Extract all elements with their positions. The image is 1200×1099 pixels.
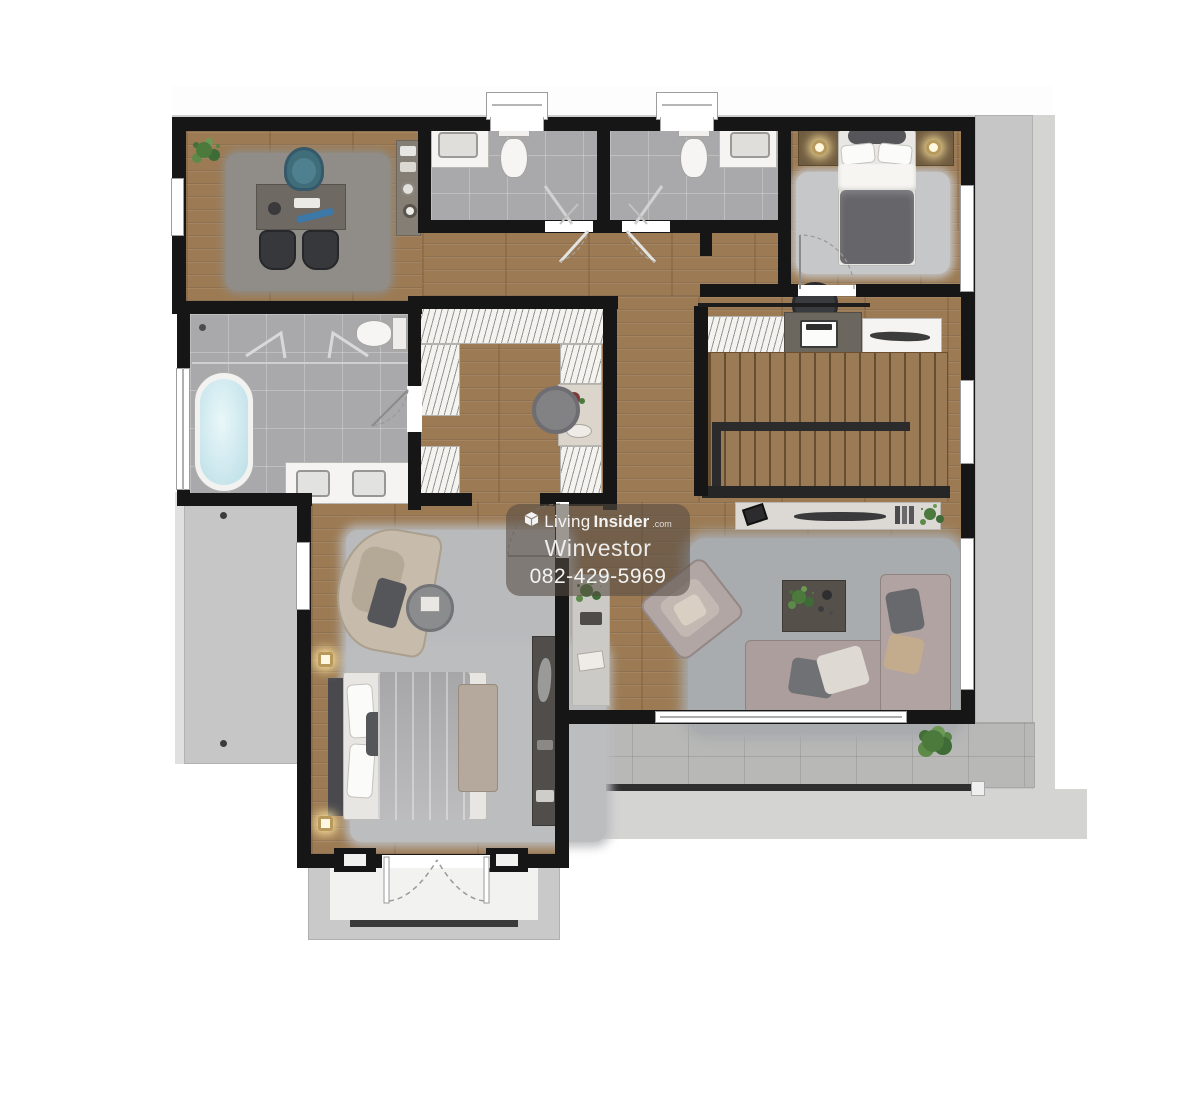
wall-segment: [597, 117, 610, 227]
books: [902, 506, 907, 524]
entry-balcony-railing: [350, 920, 518, 927]
table-lamp: [812, 140, 827, 155]
bathroom1-window-box: [486, 92, 548, 120]
office-shelf-items: [401, 182, 415, 196]
door-gap: [622, 221, 670, 232]
bathroom2-window-box: [656, 92, 718, 120]
stair-wall: [702, 486, 950, 498]
plant: [922, 730, 944, 752]
wall-segment: [778, 117, 791, 292]
entry-pilaster-core: [344, 854, 366, 866]
bathroom2-sink: [730, 132, 770, 158]
wall-segment: [408, 493, 472, 506]
table-tray: [420, 596, 440, 612]
window-mullion: [182, 368, 184, 490]
wall-segment: [418, 117, 431, 227]
watermark-brand-row: LivingInsider.com: [524, 511, 671, 530]
wall-segment: [412, 296, 618, 309]
bed-bench: [458, 684, 498, 792]
desk-wall-line: [698, 303, 870, 307]
bathtub-water: [200, 379, 248, 485]
wall-segment: [172, 301, 422, 314]
watermark-agent-name: Winvestor: [545, 535, 652, 562]
office-shelf-items: [400, 146, 416, 156]
door-gap: [407, 386, 422, 432]
shower-head: [199, 324, 206, 331]
sofa-pillow: [883, 633, 926, 676]
guest-chair: [302, 230, 339, 270]
office-keyboard: [294, 198, 320, 208]
guest-chair: [259, 230, 296, 270]
bed-pillow: [877, 142, 913, 165]
wall-segment: [418, 220, 791, 233]
livinginsider-logo-cube-icon: [524, 511, 539, 527]
watermark-brand-bold: Insider: [593, 513, 649, 530]
window: [960, 380, 974, 464]
bathroom1-sink: [438, 132, 478, 158]
wall-window-gap: [660, 117, 714, 131]
sliding-door-track: [660, 716, 902, 718]
terrace-railing: [585, 784, 977, 791]
downlight: [220, 740, 227, 747]
closet-ottoman: [532, 386, 580, 434]
table-lamp: [926, 140, 941, 155]
window: [960, 185, 974, 292]
wall-lamp: [318, 652, 333, 667]
sofa-pillow: [885, 587, 926, 634]
wall-lamp: [318, 816, 333, 831]
window: [296, 542, 310, 610]
tv-soundbar: [794, 512, 886, 521]
bathroom2-toilet-bowl: [680, 138, 708, 178]
office-shelf-items: [403, 204, 417, 218]
watermark-brand-suffix: .com: [652, 520, 672, 529]
watermark-brand-light: Living: [544, 513, 590, 530]
plant: [792, 590, 806, 604]
console-candles: [580, 612, 602, 625]
wall-window-gap: [490, 117, 544, 131]
floor-plan-canvas: LivingInsider.com Winvestor 082-429-5969: [0, 0, 1200, 1099]
bedroom2-duvet: [840, 190, 914, 264]
books: [909, 506, 914, 524]
window-sill-line: [492, 104, 542, 106]
roof-eave: [172, 86, 1053, 117]
vanity-sink: [352, 470, 386, 497]
office-mug: [268, 202, 281, 215]
entry-balcony-floor: [330, 866, 538, 920]
window-sill-line: [662, 104, 712, 106]
console-tray: [577, 650, 605, 671]
downlight: [220, 512, 227, 519]
bedroom2-blanket-white: [838, 164, 916, 192]
wall-segment: [172, 117, 975, 131]
wall-segment: [603, 296, 617, 510]
bed-headboard: [328, 678, 343, 816]
office-chair-seat: [292, 158, 316, 184]
door-gap: [545, 221, 593, 232]
bathroom1-toilet-bowl: [500, 138, 528, 178]
stair-railing: [712, 422, 910, 431]
master-toilet-bowl: [356, 320, 392, 347]
wall-segment: [856, 284, 975, 297]
books: [895, 506, 900, 524]
door-gap: [382, 855, 490, 868]
plant: [196, 142, 212, 158]
wardrobe-left: [418, 344, 460, 416]
window: [960, 538, 974, 690]
staircase: [708, 352, 948, 488]
console-decor: [536, 790, 554, 802]
wall-segment: [180, 493, 312, 506]
wall-segment: [700, 284, 798, 297]
door-gap: [798, 285, 856, 296]
office-shelf-items: [400, 162, 416, 172]
stair-railing: [712, 422, 721, 490]
master-duvet: [378, 672, 470, 820]
entry-pilaster-core: [496, 854, 518, 866]
coffee-table: [782, 580, 846, 632]
plant: [924, 508, 936, 520]
wardrobe-right: [560, 344, 602, 384]
walkway-right: [1033, 115, 1055, 838]
wall-segment: [700, 222, 712, 256]
console-decor: [537, 740, 553, 750]
table-cups: [822, 590, 832, 600]
watermark-panel: LivingInsider.com Winvestor 082-429-5969: [506, 504, 690, 596]
walkway-bottom: [575, 789, 1087, 839]
balcony-left: [184, 492, 303, 764]
master-toilet-tank: [392, 317, 407, 350]
watermark-phone: 082-429-5969: [530, 565, 667, 589]
railing-post: [971, 781, 985, 796]
window: [171, 178, 184, 236]
laptop-keys: [806, 324, 832, 330]
bed-pillow: [840, 142, 876, 165]
wall-segment: [694, 306, 708, 496]
